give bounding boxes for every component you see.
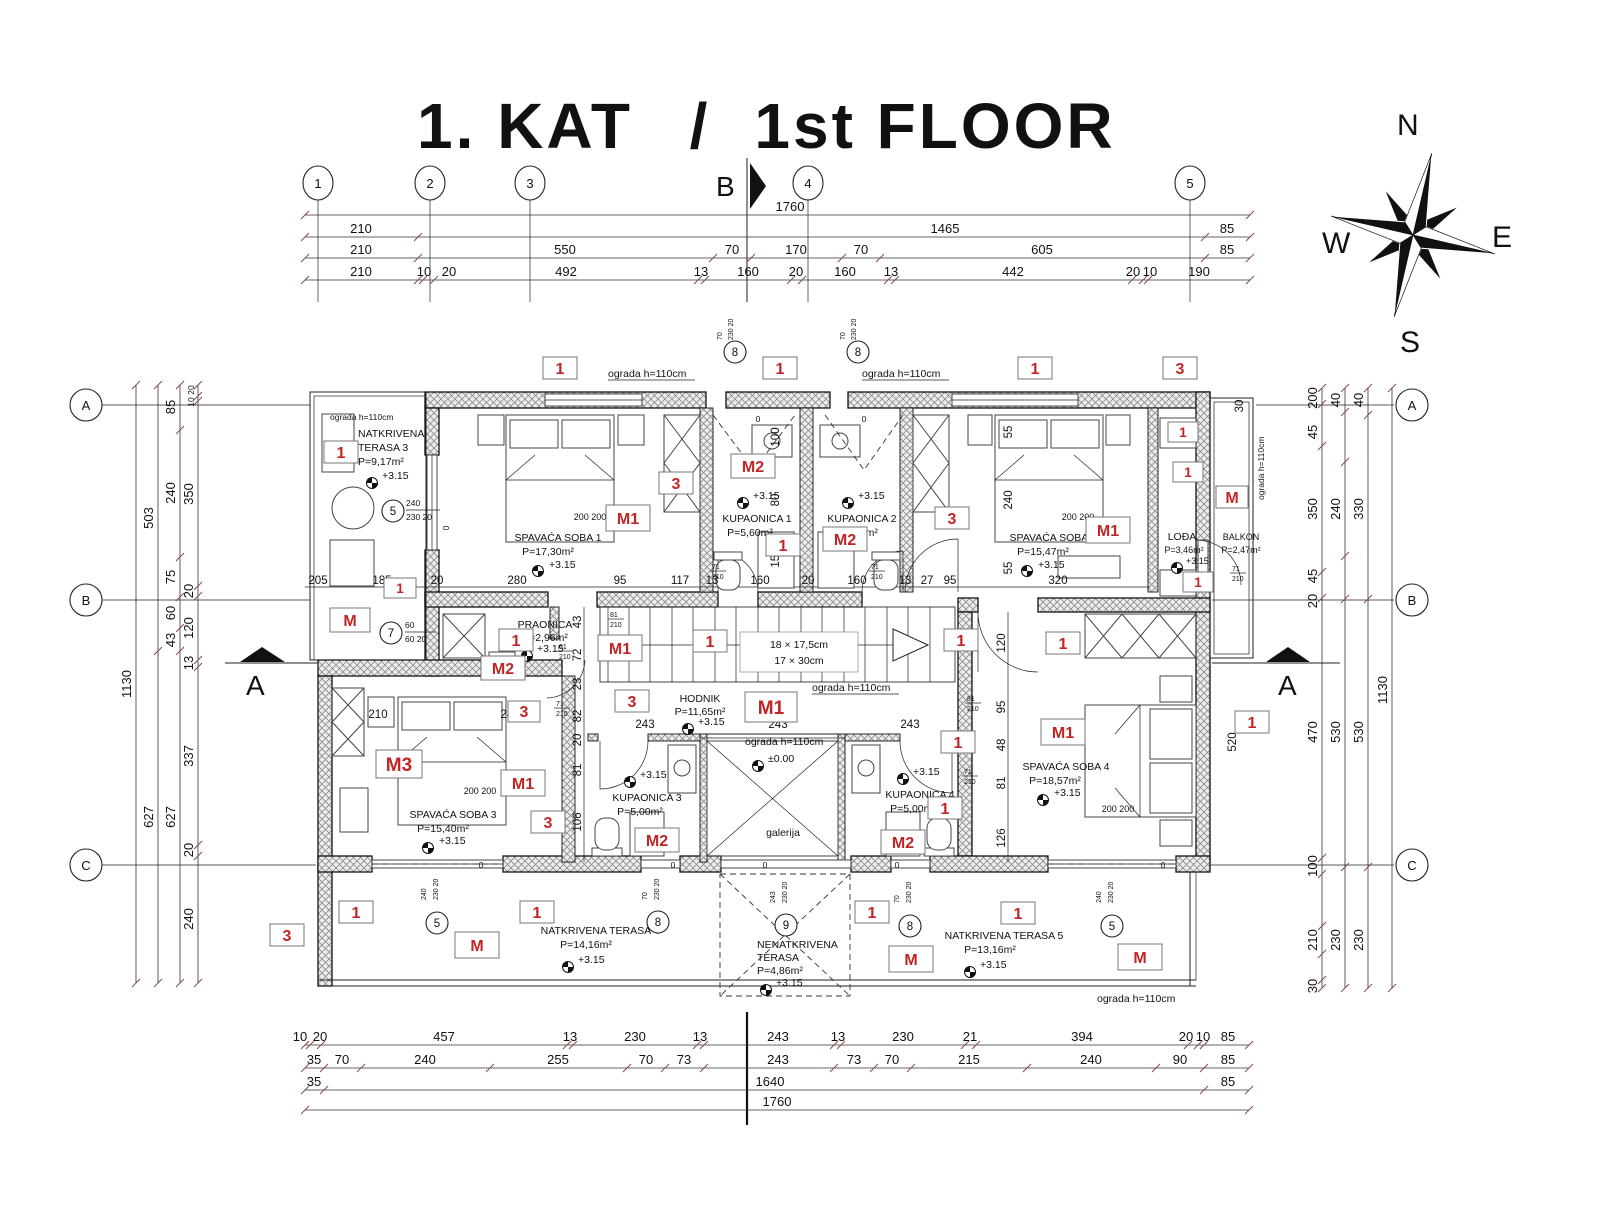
callout-5: 5 240230 20 — [421, 878, 448, 934]
nightstand — [478, 415, 504, 445]
dim: 35 — [307, 1052, 321, 1067]
dimensions-left: 1130 503 627 85 240 75 60 43 627 20 10 3… — [119, 381, 202, 987]
dim: 0 — [756, 414, 761, 424]
callout-number: 9 — [783, 920, 789, 932]
marker-1: 1 — [1194, 575, 1202, 590]
grid-row-c-left: C — [81, 858, 90, 873]
room-level: +3.15 — [382, 470, 409, 482]
room-level: +3.15 — [1186, 556, 1209, 566]
dim: 160 — [750, 575, 769, 587]
dim: 13 — [693, 1029, 707, 1044]
dim: 35 — [307, 1074, 321, 1089]
dim: 20 — [313, 1029, 327, 1044]
door-size: 210 — [559, 654, 571, 661]
room-name: HODNIK — [680, 693, 721, 705]
dim: 20 — [789, 264, 803, 279]
dim: 85 — [1221, 1029, 1235, 1044]
dim: 530 — [1328, 721, 1343, 743]
window-bedroom2 — [952, 394, 1078, 406]
dim: 240 — [163, 482, 178, 504]
marker-1: 1 — [1014, 906, 1023, 923]
floor-plan-canvas: 1. KAT / 1st FLOOR N E S W 1 2 3 4 5 B A… — [0, 0, 1600, 1214]
grid-2: 2 — [426, 176, 433, 191]
dim: 205 — [308, 575, 327, 587]
callout-5: 5 240230 20 — [1096, 881, 1123, 937]
dim: 85 — [1221, 1052, 1235, 1067]
stair-riser-label: 18 × 17,5cm — [770, 639, 828, 651]
door-size: 210 — [610, 622, 622, 629]
dim: 503 — [141, 507, 156, 529]
dim: 280 — [507, 575, 526, 587]
dim: 230 20 — [433, 878, 440, 900]
room-name: NATKRIVENA TERASA 5 — [945, 930, 1064, 942]
callout-number: 5 — [390, 506, 396, 518]
dim: 243 — [900, 719, 919, 731]
dim: 70 — [335, 1052, 349, 1067]
dim: 40 — [1351, 393, 1366, 407]
room-area: P=15,40m² — [417, 823, 469, 835]
title: 1. KAT / 1st FLOOR — [417, 90, 1116, 162]
room-name: SPAVAĆA SOBA 3 — [410, 808, 497, 821]
dim: 243 — [767, 1029, 789, 1044]
marker-3: 3 — [544, 815, 553, 832]
architectural-drawing-page: 1. KAT / 1st FLOOR N E S W 1 2 3 4 5 B A… — [0, 0, 1600, 1214]
dim: 170 — [785, 242, 807, 257]
dim: 13 — [899, 575, 912, 587]
room-name: KUPAONICA 2 — [827, 513, 896, 525]
dim: 243 — [767, 1052, 789, 1067]
dim: 10 — [1143, 264, 1157, 279]
room-level: +3.15 — [439, 835, 466, 847]
bath2-fixtures — [818, 425, 900, 590]
marker-m2: M2 — [834, 532, 856, 549]
dim: 13 — [181, 656, 196, 670]
dim: 243 — [770, 891, 777, 903]
dim: 82 — [572, 710, 584, 723]
stair-tread-label: 17 × 30cm — [774, 655, 824, 667]
room-name: SPAVAĆA SOBA 1 — [515, 531, 602, 544]
fence-label: ograda h=110cm — [1097, 993, 1176, 1005]
grid-1: 1 — [314, 176, 321, 191]
room-name: KUPAONICA 3 — [612, 792, 681, 804]
marker-1: 1 — [556, 361, 565, 378]
bed-1 — [506, 415, 614, 542]
callout-8: 8 70230 20 — [840, 318, 869, 363]
marker-m: M — [1225, 490, 1238, 507]
fence-labels: ograda h=110cm ograda h=110cm ograda h=1… — [330, 368, 1266, 1005]
dim: 13 — [831, 1029, 845, 1044]
dim: 470 — [1305, 721, 1320, 743]
dim: 70 — [725, 242, 739, 257]
section-a-label-left: A — [246, 670, 265, 701]
dim: 394 — [1071, 1029, 1093, 1044]
door-size: 71 — [871, 564, 879, 571]
section-a-arrow-icon — [240, 647, 285, 662]
dim: 1640 — [756, 1074, 785, 1089]
dim: 530 — [1351, 721, 1366, 743]
dim: 160 — [847, 575, 866, 587]
dim: 0 — [763, 860, 768, 870]
dim: 240 — [1096, 891, 1103, 903]
dim: 60 — [163, 606, 178, 620]
room-level: +3.15 — [776, 977, 803, 989]
section-b-label: B — [716, 171, 735, 202]
dim: 230 20 — [728, 318, 735, 340]
door-size: 210 — [712, 574, 724, 581]
dim: 442 — [1002, 264, 1024, 279]
dim: 45 — [1305, 569, 1320, 583]
nightstand — [1106, 415, 1130, 445]
door-size: 81 — [967, 696, 975, 703]
dim: 60 20 — [405, 634, 427, 644]
door-size: 210 — [967, 706, 979, 713]
door-size: 71 — [556, 701, 564, 708]
dim: 337 — [181, 745, 196, 767]
dim: 43 — [572, 616, 584, 629]
dim: 0 — [1161, 860, 1166, 870]
dim: 230 — [624, 1029, 646, 1044]
dim: 95 — [996, 701, 1008, 714]
dim: 190 — [1188, 264, 1210, 279]
dim: 126 — [996, 828, 1008, 847]
dim: 30 — [1305, 979, 1320, 993]
room-name: KUPAONICA 1 — [722, 513, 791, 525]
room-terrace4: NATKRIVENA TERASA 4 P=14,16m² +3.15 — [541, 925, 660, 973]
dimensions-bottom: 10 20 457 13 230 13 243 13 230 21 394 20… — [293, 1029, 1253, 1114]
dim: 13 — [884, 264, 898, 279]
fence-label: ograda h=110cm — [862, 368, 941, 380]
door-size: 210 — [1232, 576, 1244, 583]
compass-e: E — [1492, 221, 1512, 254]
marker-m2: M2 — [492, 661, 514, 678]
room-area: P=17,30m² — [522, 546, 574, 558]
marker-m2: M2 — [646, 833, 668, 850]
callout-number: 8 — [855, 347, 861, 359]
dim: 13 — [694, 264, 708, 279]
marker-1: 1 — [337, 445, 346, 462]
callout-number: 8 — [655, 917, 661, 929]
dim: 0 — [479, 860, 484, 870]
dim: 20 — [1126, 264, 1140, 279]
dim: 240 — [406, 498, 420, 508]
dim: 85 — [1220, 221, 1234, 236]
callout-8: 8 70230 20 — [894, 881, 921, 937]
room-level: +3.15 — [549, 559, 576, 571]
grid-row-c-right: C — [1407, 858, 1416, 873]
dim: 627 — [141, 806, 156, 828]
room-uncovered-terrace: NENATKRIVENA TERASA P=4,86m² +3.15 — [757, 939, 838, 996]
marker-3: 3 — [628, 694, 637, 711]
window-terrace3 — [427, 455, 437, 550]
nightstand — [618, 415, 644, 445]
room-area: P=14,16m² — [560, 939, 612, 951]
marker-m1: M1 — [1097, 523, 1119, 540]
dim: 230 20 — [1108, 881, 1115, 903]
marker-1: 1 — [954, 735, 963, 752]
dim: 210 — [350, 221, 372, 236]
dim: 20 — [181, 843, 196, 857]
door-size: 71 — [964, 769, 972, 776]
door-size: 71 — [712, 564, 720, 571]
room-name: LOĐA — [1168, 531, 1197, 543]
room-area: P=15,47m² — [1017, 546, 1069, 558]
dim: 320 — [1048, 575, 1067, 587]
dim: 255 — [547, 1052, 569, 1067]
dim: 120 — [996, 633, 1008, 652]
bed-size: 200 200 — [574, 512, 607, 522]
dim: 627 — [163, 806, 178, 828]
marker-m1: M1 — [1052, 725, 1074, 742]
dim: 90 — [1173, 1052, 1187, 1067]
marker-m: M — [343, 613, 356, 630]
marker-1: 1 — [1184, 465, 1192, 480]
room-terrace5: NATKRIVENA TERASA 5 P=13,16m² +3.15 — [945, 930, 1064, 978]
marker-1: 1 — [957, 633, 966, 650]
nightstand — [1160, 820, 1192, 846]
dim: 230 20 — [654, 878, 661, 900]
dim: 240 — [1328, 498, 1343, 520]
dim: 95 — [944, 575, 957, 587]
dim: 1465 — [931, 221, 960, 236]
dim: 20 — [442, 264, 456, 279]
dim: 20 — [572, 734, 584, 747]
room-name: SPAVAĆA SOBA 4 — [1023, 760, 1110, 773]
slider-gallery — [721, 860, 851, 868]
dim: 20 — [181, 584, 196, 598]
marker-1: 1 — [706, 634, 715, 651]
dim: 10 — [293, 1029, 307, 1044]
compass-s: S — [1400, 326, 1420, 359]
section-b-arrow-icon — [750, 163, 766, 209]
room-name: galerija — [766, 827, 800, 839]
callout-number: 8 — [732, 347, 738, 359]
dim: 210 — [350, 264, 372, 279]
dim: 70 — [717, 332, 724, 340]
room-terrace3: NATKRIVENA TERASA 3 P=9,17m² +3.15 — [358, 428, 424, 489]
dim: 230 — [1328, 929, 1343, 951]
dim: 70 — [642, 892, 649, 900]
dim: 73 — [847, 1052, 861, 1067]
dim: 80 — [770, 494, 782, 507]
dim: 23 — [572, 678, 584, 691]
dim: 106 — [572, 812, 584, 831]
dim: 75 — [163, 570, 178, 584]
marker-m1: M1 — [609, 641, 631, 658]
dim: 520 — [1227, 732, 1239, 751]
room-level: ±0.00 — [768, 753, 794, 765]
section-a-arrow-icon — [1266, 647, 1310, 662]
marker-1: 1 — [512, 633, 521, 650]
dim: 230 20 — [406, 512, 432, 522]
dim: 81 — [996, 777, 1008, 790]
dim: 20 — [1305, 594, 1320, 608]
door-size: 210 — [871, 574, 883, 581]
title-floor: 1st FLOOR — [754, 90, 1115, 162]
dimensions-top: 1760 210 1465 85 210 550 70 170 70 605 8… — [301, 199, 1254, 284]
dim: 200 — [1305, 387, 1320, 409]
room-level: +3.15 — [913, 766, 940, 778]
marker-1: 1 — [1179, 425, 1187, 440]
dim: 117 — [671, 575, 689, 587]
room-name: TERASA — [757, 952, 799, 964]
door-size: 61 — [559, 644, 567, 651]
fence-label: ograda h=110cm — [745, 736, 824, 748]
window-bedroom1 — [545, 394, 642, 406]
room-level: +3.15 — [698, 716, 725, 728]
marker-m2: M2 — [892, 835, 914, 852]
dim: 72 — [572, 649, 584, 662]
dim: 30 — [1234, 400, 1246, 413]
fence-label: ograda h=110cm — [608, 368, 687, 380]
marker-1: 1 — [868, 905, 877, 922]
dim: 55 — [1003, 562, 1015, 575]
compass-w: W — [1322, 227, 1351, 260]
grid-row-a-left: A — [82, 398, 91, 413]
dimensions-right: 200 45 350 45 20 470 100 210 30 40 240 5… — [1305, 384, 1396, 993]
grid-4: 4 — [804, 176, 811, 191]
dim: 230 — [892, 1029, 914, 1044]
marker-3: 3 — [1176, 361, 1185, 378]
dim: 13 — [563, 1029, 577, 1044]
room-area: P=3,46m² — [1164, 545, 1203, 555]
dim: 243 — [635, 719, 654, 731]
dim: 70 — [639, 1052, 653, 1067]
room-area: P=13,16m² — [964, 944, 1016, 956]
dim: 70 — [840, 332, 847, 340]
room-name: TERASA 3 — [358, 442, 408, 454]
dim: 70 — [894, 895, 901, 903]
fence-label: ograda h=110cm — [330, 412, 393, 422]
callout-number: 8 — [907, 921, 913, 933]
dim: 95 — [614, 575, 627, 587]
dim: 0 — [862, 414, 867, 424]
title-kat: 1. KAT — [417, 90, 633, 162]
dim: 230 20 — [906, 881, 913, 903]
marker-1: 1 — [941, 801, 950, 818]
dim: 492 — [555, 264, 577, 279]
compass-n: N — [1397, 109, 1419, 142]
dim: 210 — [350, 242, 372, 257]
dim: 40 — [1328, 393, 1343, 407]
dim: 550 — [554, 242, 576, 257]
door-size: 210 — [556, 711, 568, 718]
marker-m3: M3 — [386, 755, 412, 776]
bed-size: 200 200 — [464, 786, 497, 796]
grid-row-a-right: A — [1408, 398, 1417, 413]
marker-3: 3 — [672, 476, 681, 493]
door-size: 71 — [1232, 566, 1240, 573]
nightstand — [968, 415, 992, 445]
callout-8: 8 70230 20 — [717, 318, 746, 363]
marker-1: 1 — [352, 905, 361, 922]
door-size: 210 — [964, 779, 976, 786]
marker-3: 3 — [948, 511, 957, 528]
dim: 21 — [963, 1029, 977, 1044]
dim: 350 — [1305, 498, 1320, 520]
dim: 160 — [834, 264, 856, 279]
dim: 55 — [1003, 426, 1015, 439]
marker-1: 1 — [396, 581, 404, 596]
dim: 1760 — [763, 1094, 792, 1109]
dim: 20 — [431, 575, 444, 587]
room-area: P=5,00m² — [617, 806, 663, 818]
fence-label: ograda h=110cm — [1256, 437, 1266, 500]
room-level: +3.15 — [640, 769, 667, 781]
dim: 240 — [1080, 1052, 1102, 1067]
title-slash: / — [690, 90, 711, 162]
dim: 330 — [1351, 498, 1366, 520]
marker-3: 3 — [520, 704, 529, 721]
room-area: P=2,47m² — [1221, 545, 1260, 555]
dim: 215 — [958, 1052, 980, 1067]
dim: 60 — [405, 620, 415, 630]
dim: 350 — [181, 483, 196, 505]
dim: 20 — [186, 385, 196, 395]
marker-1: 1 — [1059, 636, 1068, 653]
room-level: +3.15 — [1054, 787, 1081, 799]
dim: 45 — [1305, 425, 1320, 439]
room-name: NATKRIVENA — [358, 428, 424, 440]
grid-row-b-right: B — [1408, 593, 1417, 608]
bed-size: 200 200 — [1102, 804, 1135, 814]
marker-m1: M1 — [617, 511, 639, 528]
dim: 120 — [181, 617, 196, 639]
dim: 100 — [1305, 855, 1320, 877]
room-area: P=9,17m² — [358, 456, 404, 468]
room-name: BALKON — [1223, 532, 1260, 542]
room-level: +3.15 — [1038, 559, 1065, 571]
dim: 10 — [186, 397, 196, 407]
door-size: 81 — [610, 612, 618, 619]
dim: 240 — [181, 908, 196, 930]
stairs: 18 × 17,5cm 17 × 30cm — [600, 607, 955, 682]
room-name: NENATKRIVENA — [757, 939, 838, 951]
room-name: SPAVAĆA SOBA 2 — [1010, 531, 1097, 544]
dim: 85 — [1221, 1074, 1235, 1089]
marker-1: 1 — [776, 361, 785, 378]
room-area: P=18,57m² — [1029, 775, 1081, 787]
room-area: P=4,86m² — [757, 965, 803, 977]
marker-m: M — [470, 938, 483, 955]
marker-1: 1 — [779, 538, 788, 555]
dim: 605 — [1031, 242, 1053, 257]
dim: 160 — [737, 264, 759, 279]
compass-rose-icon: N E S W — [1312, 109, 1513, 359]
dim: 240 — [1003, 490, 1015, 509]
dim: 1760 — [776, 199, 805, 214]
marker-m: M — [904, 952, 917, 969]
room-name: NATKRIVENA TERASA 4 — [541, 925, 660, 937]
dim: 81 — [572, 764, 584, 777]
nightstand — [1160, 676, 1192, 702]
circled-callouts: 5 240230 20 7 6060 20 8 70230 20 8 70230… — [380, 318, 1123, 937]
dim: 230 20 — [851, 318, 858, 340]
callout-number: 5 — [1109, 921, 1115, 933]
dim: 210 — [1305, 929, 1320, 951]
dim: 0 — [441, 525, 451, 530]
dim: 0 — [671, 860, 676, 870]
marker-m1: M1 — [758, 698, 785, 719]
dim: 1130 — [1375, 676, 1390, 704]
marker-m: M — [1133, 950, 1146, 967]
room-level: +3.15 — [980, 959, 1007, 971]
dim: 85 — [1220, 242, 1234, 257]
room-level: +3.15 — [578, 954, 605, 966]
dim: 210 — [368, 709, 387, 721]
dim: 100 — [770, 427, 782, 446]
callout-9: 9 243230 20 — [770, 881, 797, 936]
chair — [340, 788, 368, 832]
